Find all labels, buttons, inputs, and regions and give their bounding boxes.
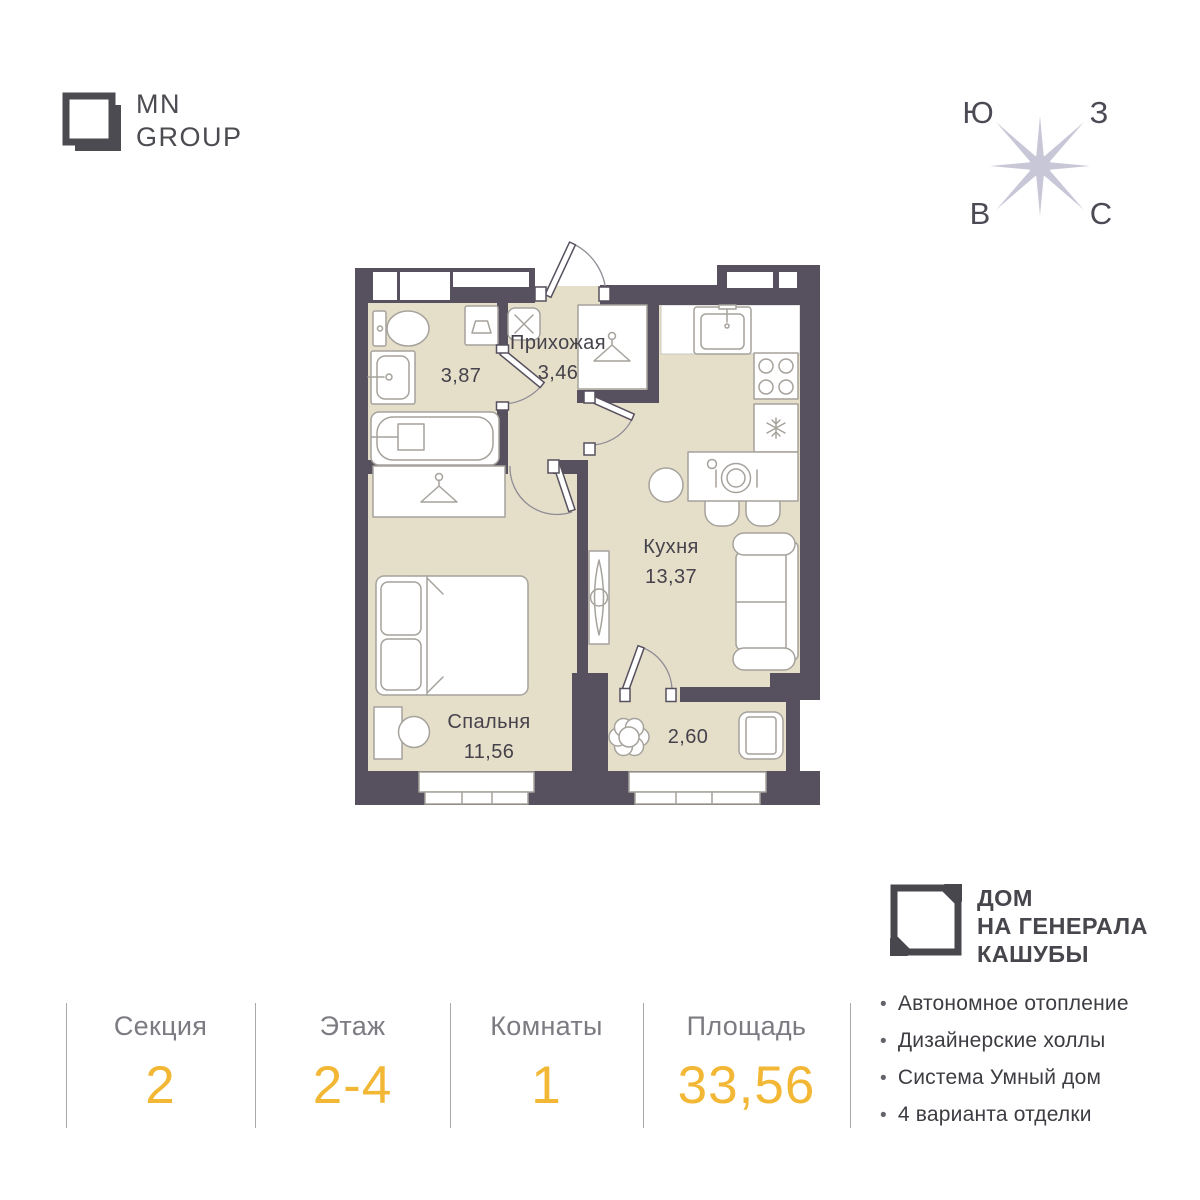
project-title-line2: НА ГЕНЕРАЛА (977, 912, 1148, 940)
sofa-icon (733, 533, 798, 670)
bullet-icon: • (880, 994, 887, 1016)
compass-south-label: Ю (962, 95, 993, 130)
balcony-area-label: 2,60 (668, 726, 709, 748)
sink-icon (368, 351, 415, 404)
bedroom-name-label: Спальня (447, 711, 530, 733)
balcony-table-icon (739, 712, 783, 759)
kitchen-sink-icon (694, 305, 751, 354)
summary-section-label: Секция (114, 1011, 207, 1042)
summary-area: Площадь 33,56 (643, 1003, 850, 1128)
summary-area-label: Площадь (687, 1011, 807, 1042)
mn-group-wordmark: MN GROUP (136, 88, 243, 154)
summary-rooms-value: 1 (531, 1055, 561, 1116)
chair-icon (649, 468, 683, 502)
project-logo-icon (888, 882, 964, 958)
summary-section-value: 2 (145, 1055, 175, 1116)
project-title-line1: ДОМ (977, 884, 1148, 912)
feature-item: • 4 варианта отделки (880, 1103, 1129, 1127)
tv-console-icon (589, 551, 609, 644)
toilet-icon (373, 311, 429, 346)
summary-area-value: 33,56 (678, 1055, 816, 1116)
summary-rooms-label: Комнаты (490, 1011, 603, 1042)
feature-text: Автономное отопление (898, 992, 1129, 1016)
compass-west-label: З (1090, 95, 1109, 130)
project-title: ДОМ НА ГЕНЕРАЛА КАШУБЫ (977, 884, 1148, 968)
hallway-name-label: Прихожая (510, 332, 606, 354)
mn-group-line2: GROUP (136, 121, 243, 154)
bedroom-window (419, 772, 534, 804)
summary-floor-label: Этаж (320, 1011, 386, 1042)
bullet-icon: • (880, 1068, 887, 1090)
balcony-window (629, 772, 766, 804)
desk-chair-icon (399, 717, 430, 748)
summary-section: Секция 2 (66, 1003, 255, 1128)
compass-north-label: С (1090, 196, 1112, 231)
kitchen-name-label: Кухня (643, 536, 699, 558)
plant-icon (609, 719, 649, 756)
bedroom-closet (373, 466, 505, 517)
features-list: • Автономное отопление • Дизайнерские хо… (880, 992, 1129, 1140)
dining-table-icon (688, 452, 798, 501)
feature-text: Дизайнерские холлы (898, 1029, 1106, 1053)
bed-icon (376, 576, 528, 695)
fridge-icon (754, 404, 798, 452)
summary-floor: Этаж 2-4 (255, 1003, 450, 1128)
feature-text: 4 варианта отделки (898, 1103, 1092, 1127)
bathroom-area-label: 3,87 (441, 365, 482, 387)
bathtub-icon (371, 412, 499, 465)
summary-rooms: Комнаты 1 (450, 1003, 643, 1128)
washing-machine-icon (465, 306, 498, 345)
bullet-icon: • (880, 1105, 887, 1127)
feature-item: • Автономное отопление (880, 992, 1129, 1016)
mn-group-logo-icon (62, 92, 124, 154)
feature-item: • Система Умный дом (880, 1066, 1129, 1090)
hallway-area-label: 3,46 (538, 362, 579, 384)
floor-plan: 3,87 Прихожая 3,46 Кухня 13,37 Спальня 1… (340, 222, 840, 822)
compass-icon: Ю З В С (940, 78, 1140, 238)
summary-floor-value: 2-4 (313, 1055, 393, 1116)
stove-icon (754, 353, 798, 399)
feature-item: • Дизайнерские холлы (880, 1029, 1129, 1053)
compass-east-label: В (970, 196, 991, 231)
kitchen-area-label: 13,37 (645, 566, 697, 588)
mn-group-line1: MN (136, 88, 243, 121)
divider (850, 1003, 851, 1128)
feature-text: Система Умный дом (898, 1066, 1101, 1090)
page: MN GROUP Ю З В С (0, 0, 1200, 1200)
bedroom-area-label: 11,56 (464, 741, 515, 763)
project-title-line3: КАШУБЫ (977, 940, 1148, 968)
bullet-icon: • (880, 1031, 887, 1053)
